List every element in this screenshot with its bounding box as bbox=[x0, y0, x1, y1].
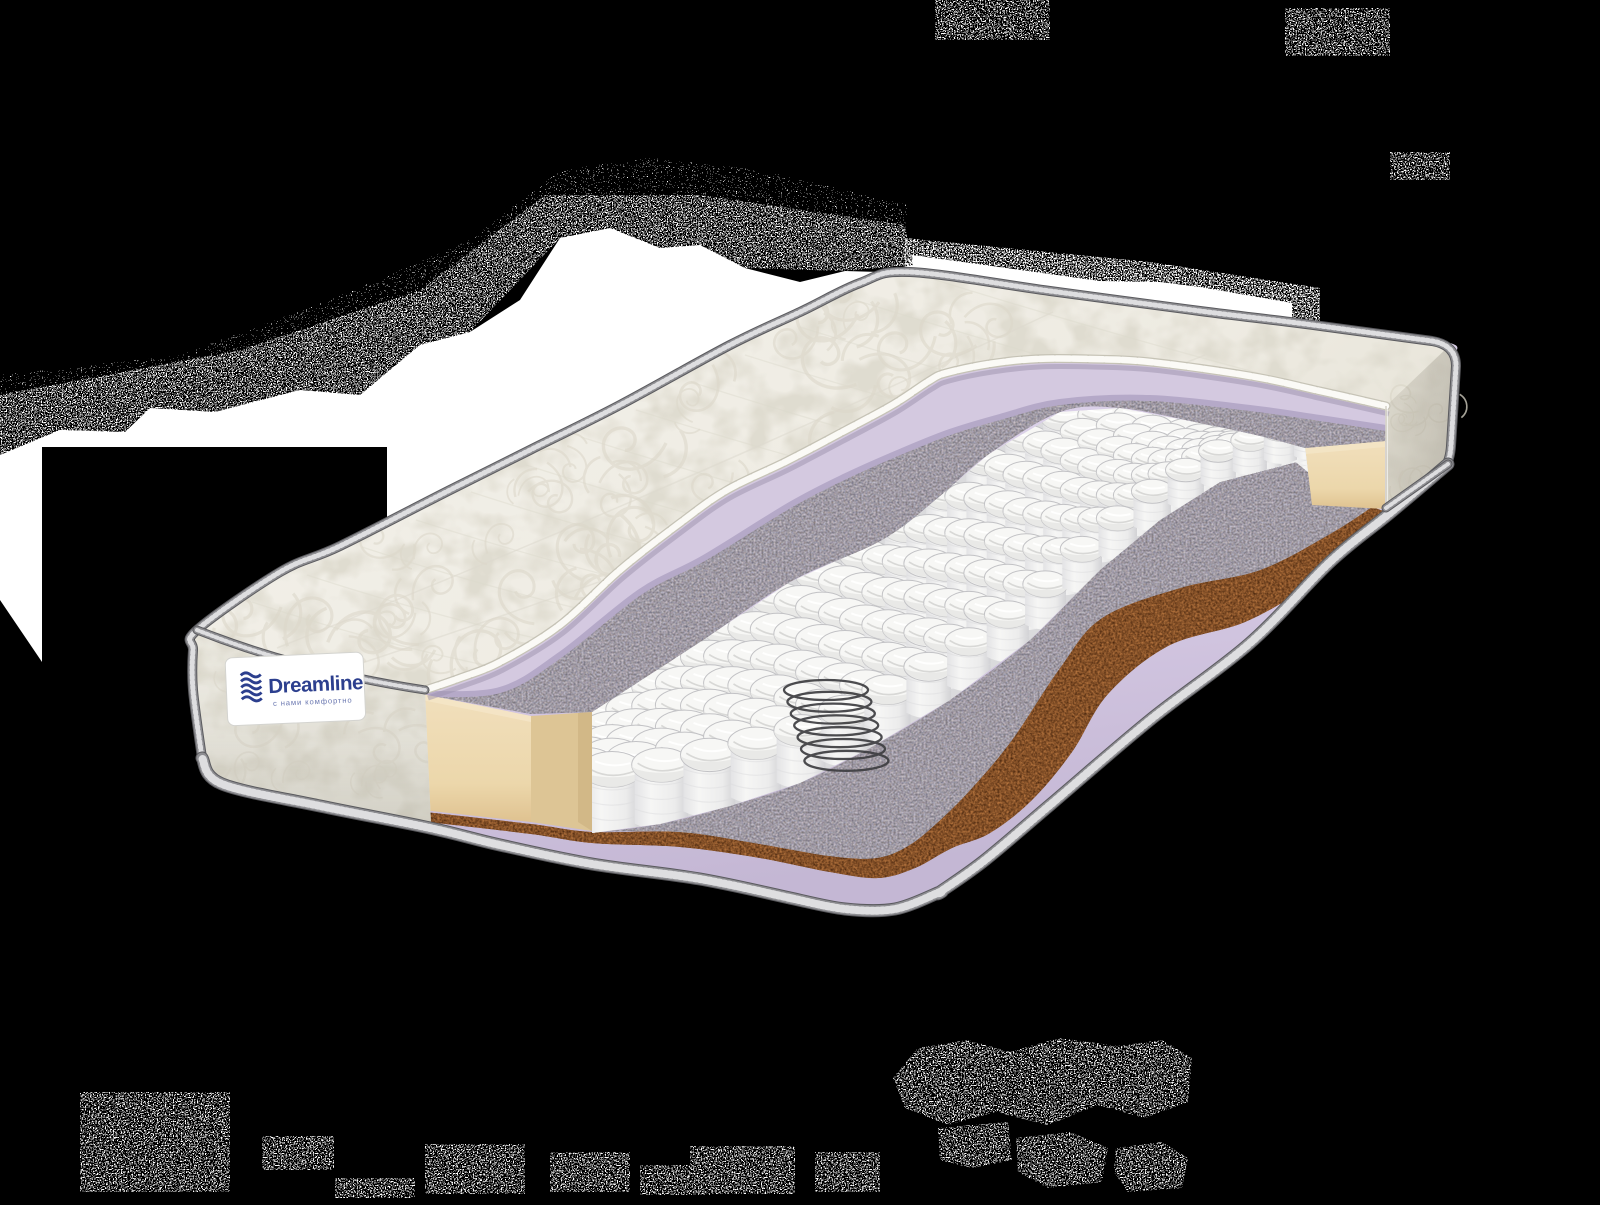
svg-text:Dreamline: Dreamline bbox=[268, 671, 364, 698]
